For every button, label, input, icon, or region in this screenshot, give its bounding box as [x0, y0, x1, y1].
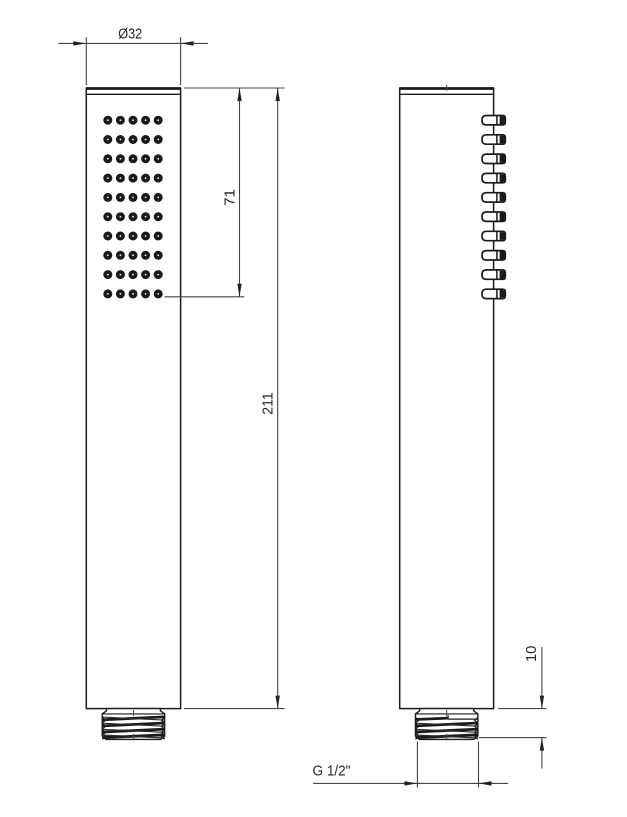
- svg-text:10: 10: [523, 646, 540, 663]
- svg-text:211: 211: [259, 392, 276, 415]
- svg-text:71: 71: [221, 189, 238, 206]
- svg-text:G 1/2": G 1/2": [313, 763, 351, 780]
- svg-text:Ø32: Ø32: [118, 26, 142, 43]
